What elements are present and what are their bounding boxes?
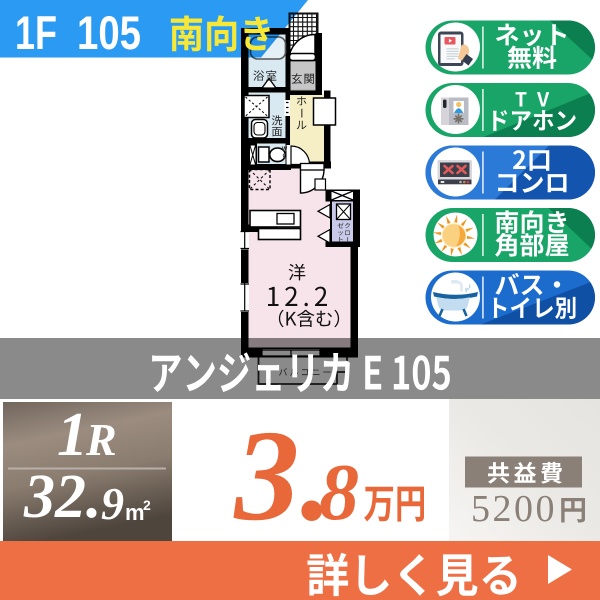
svg-text:32.: 32.: [23, 463, 102, 531]
svg-text:9: 9: [101, 478, 124, 529]
svg-text:8: 8: [319, 449, 359, 537]
svg-text:1F: 1F: [15, 7, 57, 60]
svg-text:2: 2: [143, 497, 151, 513]
svg-text:m: m: [125, 500, 145, 525]
svg-text:5200: 5200: [471, 488, 557, 530]
svg-text:R: R: [85, 414, 117, 465]
svg-text:1: 1: [57, 401, 88, 469]
svg-text:105: 105: [77, 7, 141, 60]
svg-text:3: 3: [233, 404, 300, 548]
